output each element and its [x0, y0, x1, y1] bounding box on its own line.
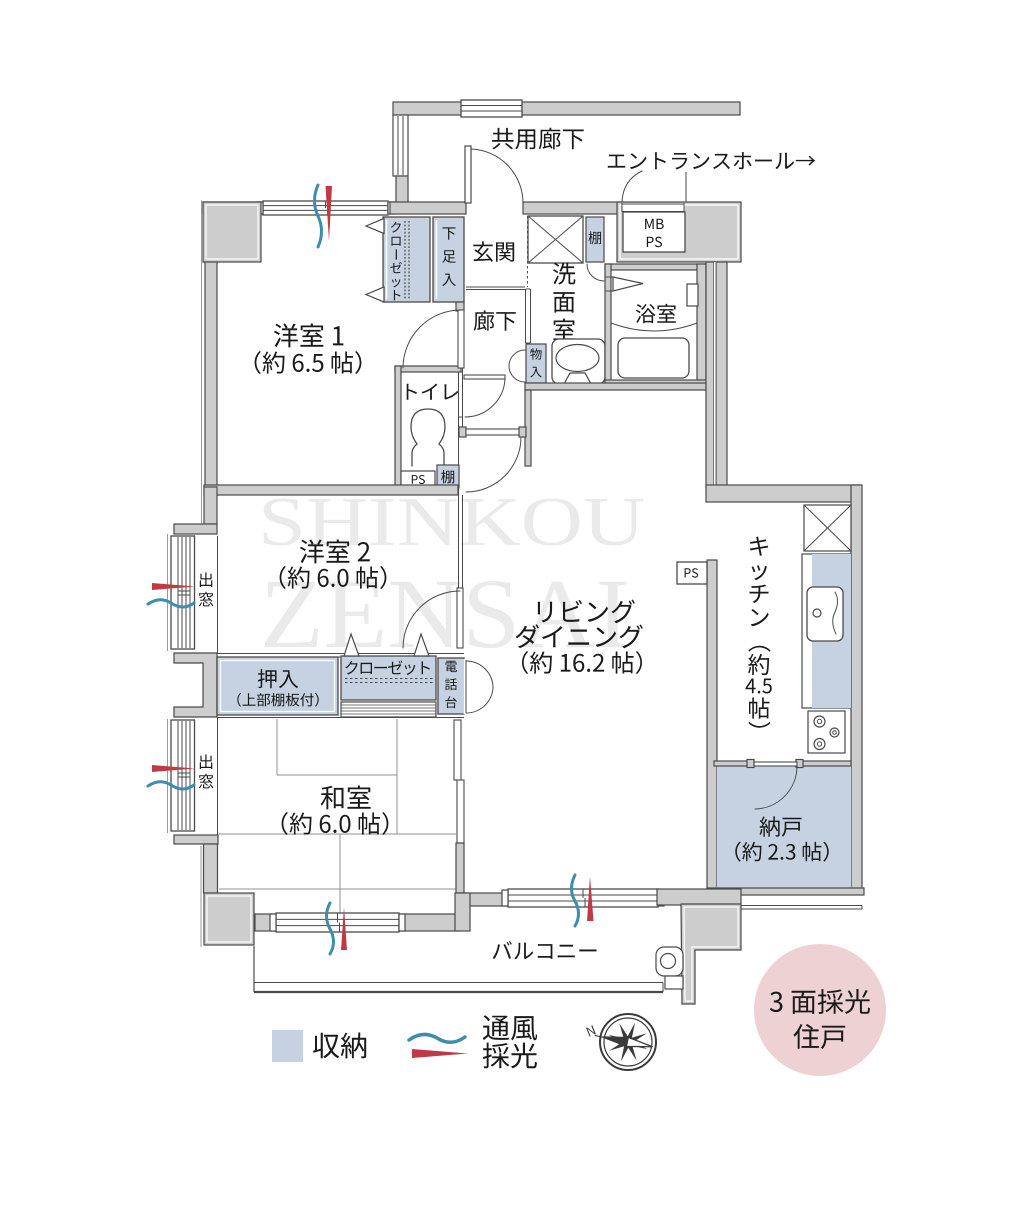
svg-text:ZENSAI: ZENSAI [260, 558, 630, 669]
